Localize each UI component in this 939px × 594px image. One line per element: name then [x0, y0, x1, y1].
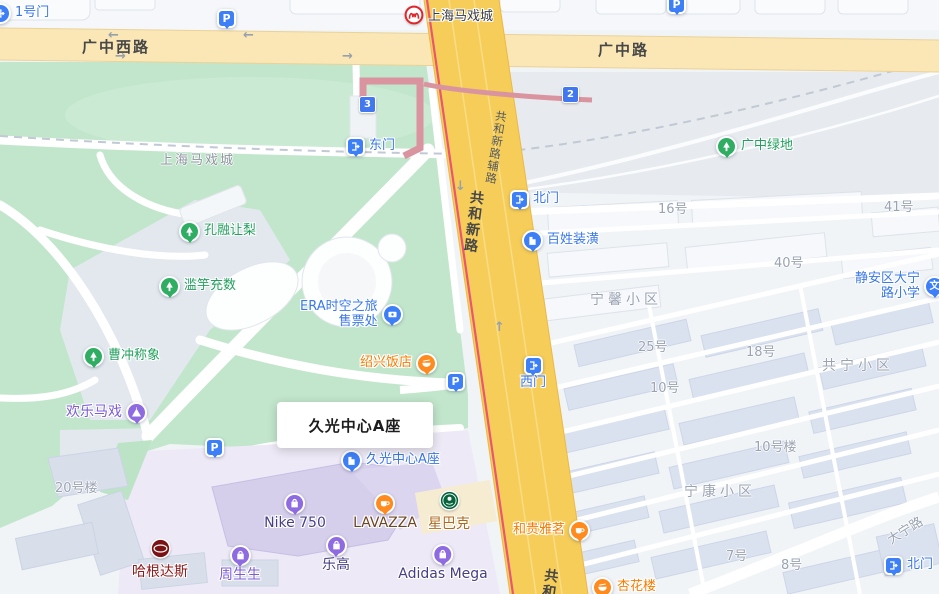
metro-exit-icon	[510, 190, 529, 209]
poi-label: 上海马戏城	[428, 10, 493, 25]
traffic-arrow-right: →	[342, 49, 353, 64]
area-label-circus-park: 上海马戏城	[160, 149, 235, 168]
shanghai-metro-logo-icon	[404, 5, 424, 29]
poi-era-ticket-office[interactable]: ERA时空之旅售票处	[300, 300, 403, 330]
traffic-arrow-down: ↓	[455, 179, 466, 194]
shopping-bag-icon	[284, 493, 305, 514]
poi-label: 东门	[369, 139, 395, 154]
parking-icon: P	[667, 0, 686, 14]
poi-label: 哈根达斯	[132, 564, 188, 580]
poi-jiuguang-center-a[interactable]: 久光中心A座	[341, 450, 440, 471]
poi-huanle[interactable]: 欢乐马戏	[66, 402, 147, 423]
parking-icon: P	[446, 372, 465, 391]
poi-guangzhong-greenland[interactable]: 广中绿地	[716, 136, 793, 157]
poi-east-gate[interactable]: 东门	[346, 137, 395, 156]
map-canvas[interactable]: 广中西路 广中路 共和新路 共和新路 共和新路辅路 大宁路 上海马戏城 宁馨小区…	[0, 0, 939, 594]
bowl-icon	[592, 577, 613, 594]
parking-icon: P	[217, 9, 236, 28]
poi-caochong[interactable]: 曹冲称象	[83, 346, 160, 367]
traffic-arrow-left: ←	[108, 28, 119, 43]
selected-place-infobox[interactable]: 久光中心A座	[277, 402, 433, 448]
building-icon	[341, 450, 362, 471]
tree-icon	[83, 346, 104, 367]
poi-chow-sang-sang[interactable]: 周生生	[219, 545, 261, 583]
bldg-label-7: 7号	[726, 545, 747, 564]
bldg-label-20: 20号楼	[55, 477, 98, 496]
poi-starbucks[interactable]: 星巴克	[428, 490, 470, 532]
traffic-arrow-up: ↑	[494, 320, 505, 335]
metro-exit-icon	[346, 137, 365, 156]
building-icon	[522, 230, 543, 251]
poi-label: 星巴克	[428, 516, 470, 532]
poi-label: 滥竽充数	[184, 279, 236, 294]
poi-label: 绍兴饭店	[360, 356, 412, 371]
gate-icon	[0, 3, 11, 24]
metro-exit-icon	[884, 556, 903, 575]
poi-label: 静安区大宁路小学	[855, 272, 920, 302]
poi-lavazza[interactable]: LAVAZZA	[353, 493, 417, 531]
poi-lanyu[interactable]: 滥竽充数	[159, 276, 236, 297]
poi-label: 1号门	[15, 6, 49, 21]
shopping-bag-icon	[326, 535, 347, 556]
poi-metro-station[interactable]: 上海马戏城	[404, 5, 493, 29]
poi-label: 曹冲称象	[108, 349, 160, 364]
poi-daning-primary-school[interactable]: 静安区大宁路小学 文	[855, 272, 939, 302]
poi-parking-2[interactable]: P	[667, 0, 686, 14]
bldg-label-41: 41号	[884, 196, 914, 215]
poi-lego[interactable]: 乐高	[322, 535, 350, 573]
poi-label: 百姓装潢	[547, 233, 599, 248]
poi-label: 杏花楼	[617, 580, 656, 594]
tree-icon	[159, 276, 180, 297]
area-label-ningkang: 宁康小区	[684, 481, 756, 501]
poi-hegui-teahouse[interactable]: 和贵雅茗	[513, 520, 590, 541]
poi-label: 久光中心A座	[366, 453, 440, 468]
parking-icon: P	[205, 438, 224, 457]
poi-label: 和贵雅茗	[513, 523, 565, 538]
bowl-icon	[416, 353, 437, 374]
traffic-arrow-left: ←	[243, 28, 254, 43]
tree-icon	[716, 136, 737, 157]
haagen-dazs-logo-icon	[150, 538, 171, 563]
poi-label: 北门	[533, 192, 559, 207]
poi-baixing-decoration[interactable]: 百姓装潢	[522, 230, 599, 251]
poi-north-gate-2[interactable]: 北门	[884, 556, 933, 575]
ticket-icon	[382, 304, 403, 325]
bldg-label-40: 40号	[774, 252, 804, 271]
coffee-cup-icon	[374, 493, 395, 514]
poi-haagen-dazs[interactable]: 哈根达斯	[132, 538, 188, 580]
shopping-bag-icon	[230, 545, 251, 566]
area-label-ningxin: 宁馨小区	[590, 289, 662, 309]
tree-icon	[179, 221, 200, 242]
bldg-label-16: 16号	[658, 198, 688, 217]
poi-xinghualou[interactable]: 杏花楼	[592, 577, 656, 594]
poi-gate1[interactable]: 1号门	[0, 3, 49, 24]
school-icon: 文	[924, 276, 939, 297]
poi-label: 孔融让梨	[204, 224, 256, 239]
bldg-label-8: 8号	[781, 554, 802, 573]
shopping-bag-icon	[432, 544, 453, 565]
poi-parking-4[interactable]: P	[205, 438, 224, 457]
road-label-guangzhong: 广中路	[598, 39, 649, 60]
poi-parking-1[interactable]: P	[217, 9, 236, 28]
poi-shaoxing-restaurant[interactable]: 绍兴饭店	[360, 353, 437, 374]
poi-nike-750[interactable]: Nike 750	[264, 493, 326, 531]
poi-adidas-mega[interactable]: Adidas Mega	[398, 544, 487, 582]
bldg-label-18: 18号	[746, 341, 776, 360]
bldg-label-10l: 10号楼	[754, 436, 797, 455]
circus-tent-icon	[126, 402, 147, 423]
starbucks-logo-icon	[439, 490, 460, 515]
metro-exit-icon	[523, 356, 542, 375]
poi-west-gate[interactable]: 西门	[520, 356, 546, 391]
area-label-gongning: 共宁小区	[822, 355, 894, 375]
bldg-label-10: 10号	[650, 377, 680, 396]
teacup-icon	[569, 520, 590, 541]
poi-north-gate[interactable]: 北门	[510, 190, 559, 209]
poi-label: 北门	[907, 558, 933, 573]
poi-label: 广中绿地	[741, 139, 793, 154]
metro-line-2-badge[interactable]: 2	[562, 86, 579, 103]
traffic-arrow-right: →	[115, 49, 126, 64]
poi-kongrong[interactable]: 孔融让梨	[179, 221, 256, 242]
bldg-label-25: 25号	[638, 336, 668, 355]
poi-label: ERA时空之旅售票处	[300, 300, 378, 330]
poi-label: 欢乐马戏	[66, 404, 122, 420]
poi-parking-3[interactable]: P	[446, 372, 465, 391]
metro-line-3-badge[interactable]: 3	[359, 96, 376, 113]
